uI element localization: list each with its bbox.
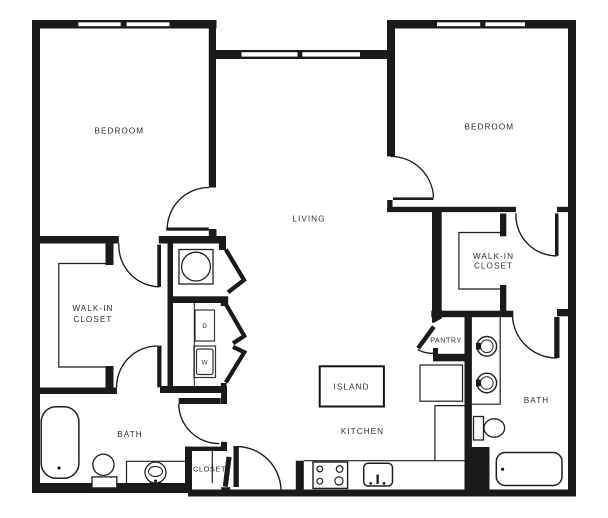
svg-text:CLOSET: CLOSET — [474, 261, 513, 270]
svg-text:BATH: BATH — [524, 396, 549, 405]
svg-text:D: D — [202, 323, 207, 330]
svg-text:BEDROOM: BEDROOM — [94, 126, 144, 135]
svg-text:ISLAND: ISLAND — [334, 383, 370, 392]
svg-text:CLOSET: CLOSET — [73, 315, 112, 324]
svg-text:WALK-IN: WALK-IN — [72, 304, 113, 313]
svg-text:KITCHEN: KITCHEN — [341, 427, 384, 436]
svg-text:BATH: BATH — [117, 430, 142, 439]
svg-text:W: W — [202, 360, 208, 367]
svg-text:BEDROOM: BEDROOM — [464, 123, 514, 132]
svg-text:WALK-IN: WALK-IN — [473, 252, 514, 261]
svg-text:PANTRY: PANTRY — [430, 336, 462, 345]
svg-text:CLOSET: CLOSET — [193, 464, 226, 473]
svg-text:LIVING: LIVING — [292, 215, 325, 224]
